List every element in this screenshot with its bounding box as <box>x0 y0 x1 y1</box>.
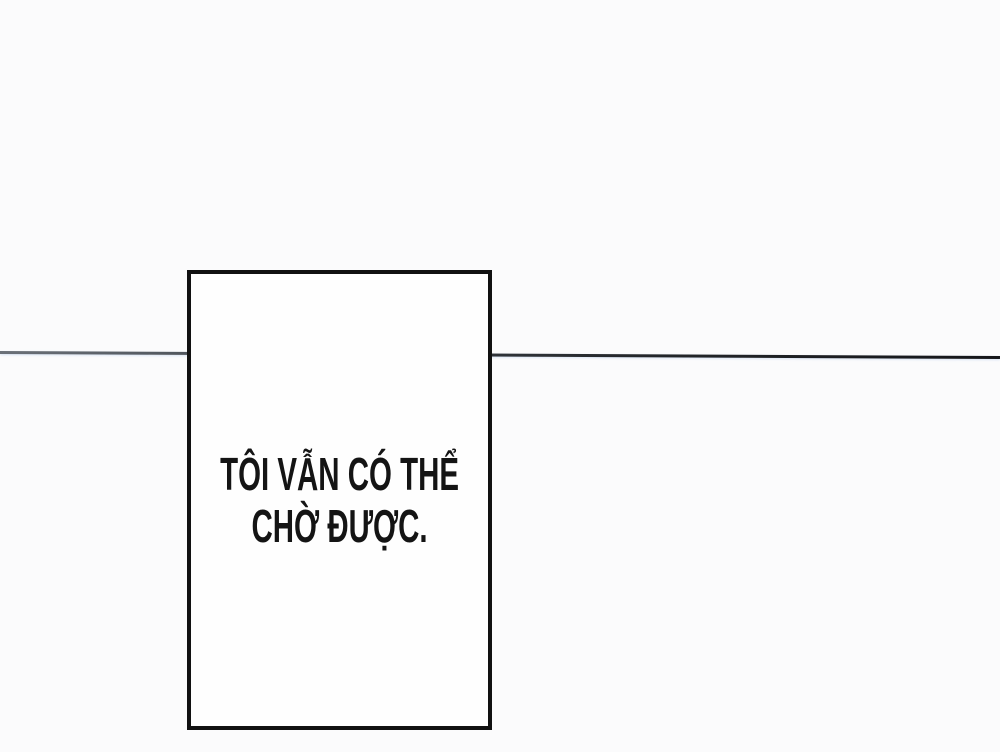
dialogue-text: TÔI VẪN CÓ THỂ CHỜ ĐƯỢC. <box>153 448 526 552</box>
dialogue-line-2: CHỜ ĐƯỢC. <box>220 500 459 552</box>
dialogue-box: TÔI VẪN CÓ THỂ CHỜ ĐƯỢC. <box>187 270 492 730</box>
panel-divider-line <box>0 351 1000 359</box>
dialogue-line-1: TÔI VẪN CÓ THỂ <box>220 448 459 500</box>
comic-page-background: TÔI VẪN CÓ THỂ CHỜ ĐƯỢC. <box>0 0 1000 752</box>
